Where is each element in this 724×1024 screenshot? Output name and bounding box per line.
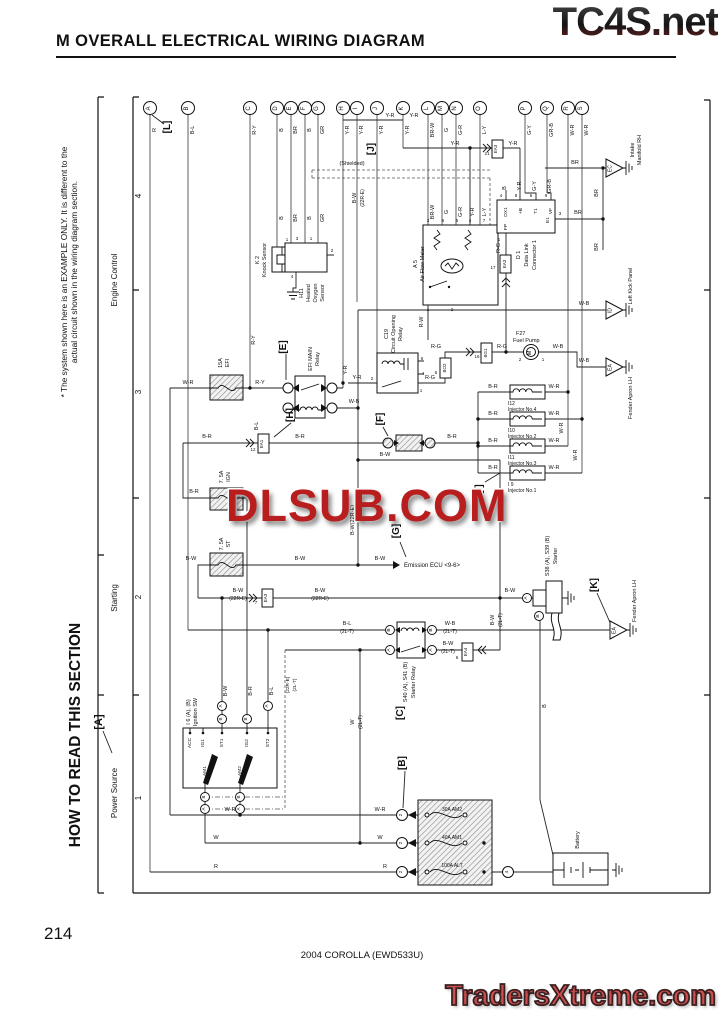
wire-label: (22R-E) xyxy=(360,189,366,207)
wire-color-label: L-Y xyxy=(482,125,488,134)
junction-dot xyxy=(468,146,471,149)
wire-label: B-W xyxy=(352,192,358,204)
wire-label: B-R xyxy=(488,384,498,390)
wire-label: 2 xyxy=(451,307,454,312)
wire-label: 7. 5A xyxy=(219,537,225,550)
wire-label: 7 xyxy=(255,600,258,605)
wire-label: 5 xyxy=(435,370,438,375)
wire-label: EA3 xyxy=(502,259,507,268)
junction-dot xyxy=(356,406,359,409)
connector-letter: J xyxy=(373,107,379,110)
junction-dot xyxy=(266,628,269,631)
wire-label: W-B xyxy=(579,358,590,364)
ignition-switch xyxy=(183,728,277,788)
junction-dot xyxy=(601,217,604,220)
wire-label: Engine Control xyxy=(110,253,119,306)
wire-label: 2 xyxy=(519,357,522,362)
wire-label: 2 xyxy=(331,248,334,253)
wire-label: Emission ECU <9-6> xyxy=(404,563,461,569)
oxygen-sensor xyxy=(285,243,327,272)
wire-label: B-W xyxy=(505,588,517,594)
wire-color-label: BR xyxy=(293,126,299,134)
ground-code: EC xyxy=(608,165,614,172)
wire-label: 3 xyxy=(296,236,299,241)
wire-label: ST1 xyxy=(219,738,225,747)
junction-dot xyxy=(482,841,485,844)
wire-label: Connector 1 xyxy=(532,240,538,270)
dlsub-watermark: DLSUB.COM xyxy=(226,480,507,532)
wire-label: Injector No.2 xyxy=(508,434,537,440)
wire-label: R-Y xyxy=(255,380,265,386)
wire-color-label: Y-R xyxy=(359,125,365,134)
wire-label: K 2 xyxy=(255,256,261,264)
wire-label: Y-R xyxy=(410,113,419,119)
wire-label: H11 xyxy=(299,288,305,298)
wire-label: B xyxy=(243,717,248,720)
wire-color-label: R-Y xyxy=(252,125,258,135)
wire-label: Intake xyxy=(630,143,636,158)
wire-color-label: R xyxy=(152,128,158,132)
wire-label: Injector No.3 xyxy=(508,461,537,467)
wire-label: (22R-E) xyxy=(229,596,247,602)
wire-label: W-R xyxy=(549,411,560,417)
connector-letter: O xyxy=(476,106,482,111)
wire-label: 2 xyxy=(398,870,404,873)
starter-relay xyxy=(397,622,425,658)
wire-label: Y-R xyxy=(509,141,518,147)
wire-label: W-R xyxy=(549,465,560,471)
wire-label: W-R xyxy=(549,384,560,390)
wire-label: B xyxy=(386,628,392,631)
junction-dot xyxy=(580,417,583,420)
wire-label: B-L xyxy=(254,422,260,431)
wire-color-label: B xyxy=(279,128,285,132)
wire-color-label: Y-R xyxy=(379,125,385,134)
wire-label: ACC xyxy=(187,737,193,748)
wire-label: Relay xyxy=(315,352,321,366)
wire-label: (2L-T) xyxy=(441,649,455,655)
wire-label: W-B xyxy=(579,301,590,307)
wire-label: (2L-T) xyxy=(498,613,504,627)
wire-label: BR xyxy=(574,210,582,216)
wire-label: R-Y xyxy=(251,335,257,345)
wire-label: R-G xyxy=(431,344,441,350)
wire-label: B-R xyxy=(488,465,498,471)
wire-label: Injector No.1 xyxy=(508,488,537,494)
wire-label: G-R xyxy=(458,207,464,217)
wire-label: B-R xyxy=(189,489,199,495)
junction-dot xyxy=(356,563,359,566)
wire-label: AM1 xyxy=(202,766,208,776)
wire-label: W-R xyxy=(375,807,386,813)
wire-label: B xyxy=(279,216,285,220)
wire-label: BR xyxy=(594,243,600,251)
junction-dot xyxy=(601,166,604,169)
wire-label: (22R-E) xyxy=(285,676,291,693)
battery xyxy=(553,853,608,885)
wire-label: D 1 xyxy=(516,251,522,260)
wire-label: VF xyxy=(548,208,554,214)
wire-label: B xyxy=(218,717,223,720)
junction-dot xyxy=(476,441,479,444)
wire-label: 8 xyxy=(515,193,518,198)
wire-label: W xyxy=(377,835,383,841)
wire-label: [L] xyxy=(162,121,173,134)
junction-dot xyxy=(482,870,485,873)
wire-color-label: Y-R xyxy=(345,125,351,134)
wire-label: W-R xyxy=(183,380,194,386)
wire-label: Power Source xyxy=(110,767,119,818)
wire-label: L-Y xyxy=(482,207,488,216)
wire-label: 4 xyxy=(134,193,143,198)
wire-label: 6 xyxy=(530,193,533,198)
wire-label: 1 xyxy=(420,388,423,393)
wire-label: W-R xyxy=(573,450,579,461)
junction-dot xyxy=(358,841,361,844)
wire-label: 15A xyxy=(218,358,224,368)
starter xyxy=(533,590,546,606)
wire-label: B-W xyxy=(186,556,198,562)
wire-color-label: GR-B xyxy=(549,123,555,137)
connector-letter: Q xyxy=(543,106,549,111)
junction-dot xyxy=(498,596,501,599)
connector-letter: M xyxy=(438,106,444,111)
connector-letter: H xyxy=(339,106,345,110)
wire-label: B-W xyxy=(295,556,307,562)
wire-label: EFI MAIN xyxy=(308,347,314,371)
connector-letter: D xyxy=(273,106,279,111)
wire-label: B-R xyxy=(202,434,212,440)
tradersxtreme-watermark: TradersXtreme.com xyxy=(445,980,716,1013)
wire-label: B-W xyxy=(443,641,455,647)
wire-label: B xyxy=(201,795,206,798)
wire-label: B-R xyxy=(488,411,498,417)
wire-label: Ignition SW xyxy=(193,697,199,726)
wire-label: T1 xyxy=(533,208,539,214)
wire-label: 1 xyxy=(427,307,430,312)
wire-color-label: G xyxy=(444,128,450,132)
wire-label: * The system shown here is an EXAMPLE ON… xyxy=(59,146,69,397)
wire-label: Data Link xyxy=(524,243,530,266)
wire-label: B-W xyxy=(490,614,496,626)
wire-label: B-L xyxy=(343,621,352,627)
wire-color-label: BR-W xyxy=(430,122,436,137)
wire-label: 7. 5A xyxy=(219,470,225,483)
wire-label: F27 xyxy=(516,331,525,337)
wire-label: W xyxy=(213,835,219,841)
junction-dot xyxy=(504,350,507,353)
wire-label: R-G xyxy=(496,243,502,253)
wire-label: Starting xyxy=(110,584,119,612)
connector-letter: K xyxy=(399,106,405,110)
wire-label: EA4 xyxy=(463,647,468,656)
ground-symbol xyxy=(623,161,632,175)
wire-label: BR xyxy=(293,214,299,222)
wire-label: EA3 xyxy=(263,593,268,602)
wire-label: 7 xyxy=(483,218,486,223)
wire-label: EFI xyxy=(225,358,231,367)
wire-label: B-W xyxy=(233,588,245,594)
wire-label: 4 xyxy=(469,218,472,223)
wire-label: B-W xyxy=(380,452,392,458)
wire-label: (22R-E) xyxy=(311,596,329,602)
wire-label: [C] xyxy=(395,706,406,720)
wire-label: 1 xyxy=(286,237,289,242)
wire-label: Air Flow Meter xyxy=(420,246,426,282)
wire-label: 2 xyxy=(134,594,143,599)
wire-label: A xyxy=(201,807,206,810)
junction-dot xyxy=(341,381,344,384)
wire-label: I 6 (A), (B) xyxy=(186,699,192,725)
wire-label: GR xyxy=(320,214,326,222)
wire-label: 21 xyxy=(484,151,490,156)
wire-label: OX1 xyxy=(503,207,509,217)
wire-label: R-W xyxy=(419,316,425,328)
wire-label: (2L-T) xyxy=(340,629,354,635)
wire-label: 6 xyxy=(421,356,424,361)
wire-label: B-W xyxy=(223,685,229,697)
wire-label: [K] xyxy=(589,578,600,592)
top-connectors: ARBB-LCR-YDBEBRFBGGRHY-RIY-RJY-RKY-RLBR-… xyxy=(144,102,591,138)
wire-color-label: G-R xyxy=(458,125,464,135)
wire-label: ST xyxy=(226,540,232,548)
wire-label: 5 xyxy=(456,218,459,223)
junction-dot xyxy=(476,417,479,420)
connector-letter: G xyxy=(314,106,320,111)
wire-label: 4 xyxy=(291,274,294,279)
ground-code: ID xyxy=(608,308,614,313)
wire-label: B xyxy=(236,795,241,798)
wire-label: Injector No.4 xyxy=(508,407,537,413)
wire-label: Y-R xyxy=(451,141,460,147)
wire-label: R xyxy=(383,864,387,870)
wire-label: 4 xyxy=(500,193,503,198)
wire-label: [F] xyxy=(375,413,386,426)
wire-label: Starter xyxy=(553,548,559,565)
wire-label: FP xyxy=(503,224,509,230)
wire-label: Starter Relay xyxy=(411,666,417,698)
wire-label: W-B xyxy=(553,344,564,350)
wire-label: A xyxy=(264,704,269,707)
junction-dot xyxy=(566,390,569,393)
wire-color-label: B xyxy=(307,128,313,132)
connector-letter: P xyxy=(521,106,527,110)
wire-label: Y-R xyxy=(517,181,523,190)
wire-label: 30A AM2 xyxy=(442,807,462,813)
wire-label: W-R xyxy=(549,438,560,444)
wire-label: BR xyxy=(594,189,600,197)
wire-label: B-L xyxy=(269,687,275,696)
wire-label: AM2 xyxy=(237,766,243,776)
wire-label: Fender Apron LH xyxy=(632,580,638,622)
wire-label: 40A AM1 xyxy=(442,835,462,841)
footer-caption: 2004 COROLLA (EWD533U) xyxy=(0,950,724,961)
wire-label: A xyxy=(218,704,223,707)
wire-label: HOW TO READ THIS SECTION xyxy=(67,623,84,847)
ground-code: EA xyxy=(608,364,614,371)
wire-label: 6 xyxy=(456,655,459,660)
wire-color-label: G-Y xyxy=(527,125,533,135)
connector-letter: A xyxy=(146,106,152,110)
connector-letter: C xyxy=(246,106,252,111)
wire-label: (2L-T) xyxy=(292,678,298,691)
efi-main-relay xyxy=(295,376,325,418)
wire-label: W-R xyxy=(225,807,236,813)
wire-label: S38 (A), S39 (B) xyxy=(545,536,551,577)
wire-color-label: Y-R xyxy=(405,125,411,134)
wire-label: 1 xyxy=(310,236,313,241)
junction-dot xyxy=(476,444,479,447)
wire-label: 1 xyxy=(134,795,143,800)
wire-label: A xyxy=(236,807,241,810)
wire-label: 2 xyxy=(371,376,374,381)
wire-label: Manifold RH xyxy=(637,135,643,165)
connector-letter: B xyxy=(184,106,190,110)
wire-label: ST2 xyxy=(265,738,271,747)
connector-letter: N xyxy=(452,106,458,110)
wire-color-label: GR xyxy=(320,126,326,134)
wire-label: Y-R xyxy=(386,113,395,119)
wire-label: [A] xyxy=(93,714,105,730)
wire-label: Battery xyxy=(575,831,581,849)
wire-label: IG1 xyxy=(200,739,206,747)
wire-label: Circuit Opening xyxy=(391,315,397,353)
wire-color-label: B-L xyxy=(190,126,196,135)
wire-label: [H] xyxy=(285,408,296,422)
wire-label: B xyxy=(502,186,508,190)
wire-label: EA1 xyxy=(259,439,264,448)
wire-label: [E] xyxy=(278,340,289,353)
wire-label: B xyxy=(307,216,313,220)
connector-letter: R xyxy=(564,106,570,111)
manual-page: M OVERALL ELECTRICAL WIRING DIAGRAM TC4S… xyxy=(0,0,724,1024)
wire-label: 3 xyxy=(134,389,143,394)
junction-dot xyxy=(358,648,361,651)
wire-label: C19 xyxy=(384,329,390,339)
wire-label: W-B xyxy=(349,399,360,405)
ground-symbol xyxy=(627,623,636,637)
wire-label: E1 xyxy=(545,217,551,223)
junction-dot xyxy=(356,458,359,461)
wire-label: G xyxy=(444,210,450,214)
emission-ecu-arrow xyxy=(393,561,400,569)
wire-label: B-W xyxy=(315,588,327,594)
wire-label: BG1 xyxy=(483,348,488,358)
connector-letter: F xyxy=(301,106,307,110)
wire-color-label: W-R xyxy=(584,125,590,136)
wire-label: B xyxy=(542,704,548,708)
wire-label: 12 xyxy=(250,447,256,452)
wire-label: 16 xyxy=(474,354,480,359)
wire-label: Relay xyxy=(398,327,404,341)
wire-label: Oxygen xyxy=(313,284,319,303)
wire-label: G-Y xyxy=(532,181,538,191)
page-number: 214 xyxy=(44,924,72,944)
wire-color-label: W-R xyxy=(570,125,576,136)
wire-label: 2 xyxy=(398,813,404,816)
wire-label: 1 xyxy=(542,357,545,362)
wire-label: [J] xyxy=(366,143,377,155)
wire-label: R-G xyxy=(425,375,435,381)
wire-label: 2 xyxy=(398,841,404,844)
wire-label: B-R xyxy=(488,438,498,444)
wire-label: Fender Apron LH xyxy=(628,377,634,419)
wire-label: 1 xyxy=(498,237,501,242)
wire-label: R-G xyxy=(497,344,507,350)
wire-label: 3 xyxy=(559,211,562,216)
wire-label: [B] xyxy=(397,756,408,770)
wire-label: BR-W xyxy=(430,204,436,219)
wire-label: (2L-T) xyxy=(358,715,364,729)
wire-label: actual circuit shown in the wiring diagr… xyxy=(69,181,79,363)
wire-label: IG2 xyxy=(244,739,250,747)
wire-label: W-R xyxy=(559,423,565,434)
wire-label: +B xyxy=(518,208,524,214)
wire-label: Heated xyxy=(306,284,312,302)
wire-label: Sensor xyxy=(320,284,326,302)
wire-label: (2L-T) xyxy=(443,629,457,635)
wire-label: M xyxy=(527,351,533,356)
wire-label: 17 xyxy=(490,265,496,270)
ground-symbol xyxy=(623,360,632,374)
wire-label: W xyxy=(350,719,356,725)
wire-label: EA3 xyxy=(493,144,498,153)
junction-dot xyxy=(248,386,251,389)
wire-label: Y-R xyxy=(470,207,476,216)
wire-label: B-R xyxy=(295,434,305,440)
junction-dot xyxy=(220,596,223,599)
wire-label: A 5 xyxy=(413,260,419,268)
ground-code: EA xyxy=(612,627,618,634)
connector-letter: E xyxy=(287,106,293,110)
wire-label: B-R xyxy=(248,686,254,696)
wire-label: S40 (A), S41 (B) xyxy=(403,662,409,703)
wire-label: Y-R xyxy=(343,365,349,374)
wire-label: BO2 xyxy=(442,363,447,373)
wire-label: W-B xyxy=(445,621,456,627)
wire-label: Fuel Pump xyxy=(513,338,540,344)
wire-label: Left Kick Panel xyxy=(628,268,634,305)
wire-label: 100A ALT xyxy=(441,863,462,869)
wire-label: Y-R xyxy=(353,375,362,381)
wire-label: 4 xyxy=(504,870,510,873)
wire-label: B xyxy=(535,614,541,617)
wire-label: 6 xyxy=(442,218,445,223)
connector-letter: S xyxy=(578,106,584,110)
wire-label: BR xyxy=(571,160,579,166)
wire-label: B-W xyxy=(375,556,387,562)
wire-label: B xyxy=(428,628,434,631)
junction-dot xyxy=(238,813,241,816)
wire-label: B-R xyxy=(447,434,457,440)
wire-label: GR-B xyxy=(547,179,553,193)
wire-label: (Shielded) xyxy=(339,161,364,167)
wire-label: Knock Sensor xyxy=(262,243,268,277)
wire-label: R xyxy=(214,864,218,870)
